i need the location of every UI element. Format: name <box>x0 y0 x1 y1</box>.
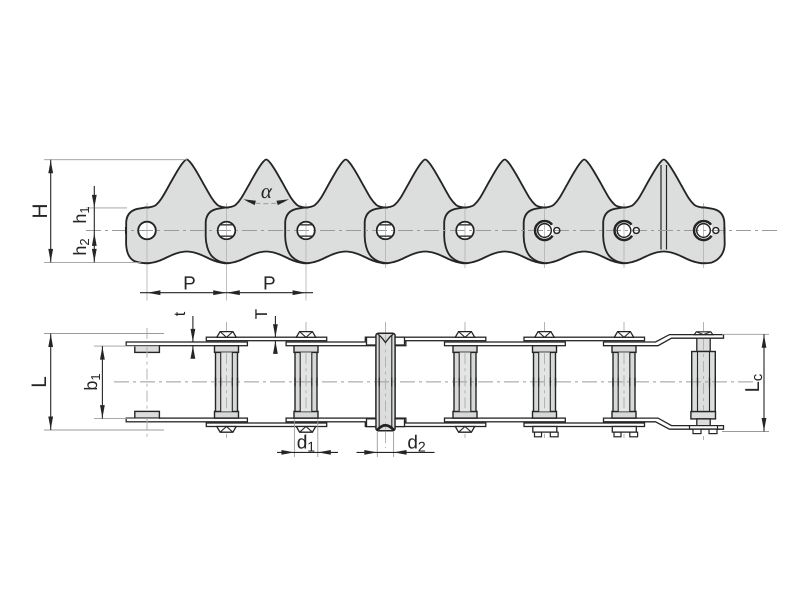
svg-text:t: t <box>172 311 189 316</box>
svg-text:α: α <box>261 179 273 203</box>
svg-text:P: P <box>183 274 196 295</box>
svg-text:T: T <box>252 309 271 319</box>
svg-text:L: L <box>28 376 51 388</box>
svg-text:P: P <box>263 274 276 295</box>
svg-text:H: H <box>29 203 52 218</box>
